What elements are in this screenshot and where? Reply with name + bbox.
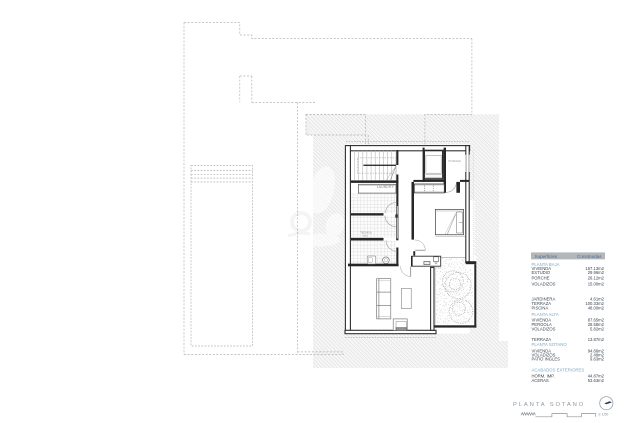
svg-text:Superficies: Superficies xyxy=(535,254,558,259)
svg-text:29.96m2: 29.96m2 xyxy=(588,270,605,275)
svg-text:PISCINA: PISCINA xyxy=(532,305,549,310)
svg-text:PORCHE: PORCHE xyxy=(532,276,550,281)
svg-text:VOLADIZOS: VOLADIZOS xyxy=(532,282,556,287)
svg-text:PLANTA ALTA: PLANTA ALTA xyxy=(532,312,559,317)
svg-text:ESTUDIO: ESTUDIO xyxy=(532,270,551,275)
svg-text:E 1/50: E 1/50 xyxy=(599,413,609,417)
svg-text:STORAGE: STORAGE xyxy=(448,159,461,163)
svg-text:PATIO INGLES: PATIO INGLES xyxy=(532,357,561,362)
svg-text:LAUNDRY: LAUNDRY xyxy=(377,185,395,189)
svg-text:15.00m2: 15.00m2 xyxy=(588,282,605,287)
svg-text:VOLADIZOS: VOLADIZOS xyxy=(532,327,556,332)
svg-text:PLANTA SOTANO: PLANTA SOTANO xyxy=(513,402,585,408)
svg-text:Construidas: Construidas xyxy=(577,254,602,259)
svg-text:9.63m2: 9.63m2 xyxy=(590,357,605,362)
svg-text:48.00m2: 48.00m2 xyxy=(588,305,605,310)
svg-text:13.87m2: 13.87m2 xyxy=(588,337,605,342)
svg-text:5.82m2: 5.82m2 xyxy=(590,327,605,332)
svg-text:PLANTA SOTANO: PLANTA SOTANO xyxy=(532,342,568,347)
svg-text:ACABADOS EXTERIORES: ACABADOS EXTERIORES xyxy=(532,368,585,373)
svg-text:ACERAS: ACERAS xyxy=(532,378,549,383)
svg-text:26.12m2: 26.12m2 xyxy=(588,276,605,281)
svg-text:53.63m2: 53.63m2 xyxy=(588,378,605,383)
svg-text:zona: zona xyxy=(362,235,368,238)
